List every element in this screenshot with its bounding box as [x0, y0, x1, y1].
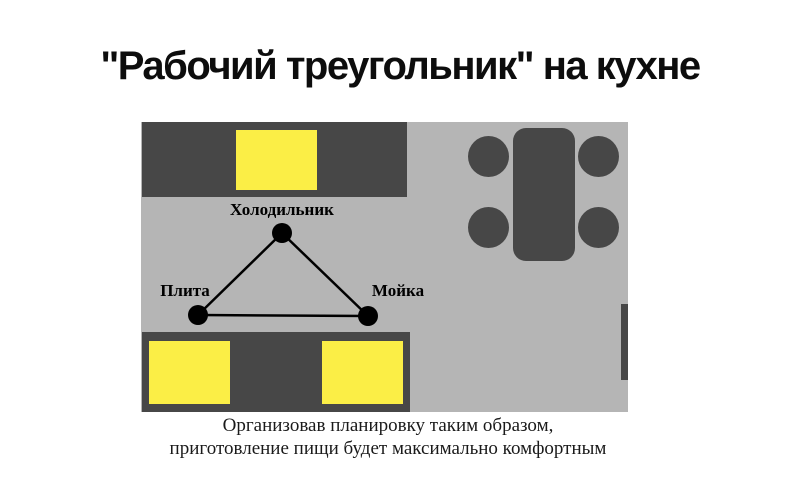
caption-line-1: Организовав планировку таким образом,: [88, 414, 688, 437]
vertex-dot-fridge: [272, 223, 292, 243]
label-fridge: Холодильник: [202, 201, 362, 219]
label-stove: Плита: [125, 282, 245, 300]
vertex-dot-sink: [358, 306, 378, 326]
triangle-edge-fridge-stove: [198, 233, 282, 315]
triangle-edge-stove-sink: [198, 315, 368, 316]
caption: Организовав планировку таким образом, пр…: [88, 414, 688, 460]
kitchen-floorplan: Холодильник Плита Мойка: [141, 122, 628, 412]
vertex-dot-stove: [188, 305, 208, 325]
infographic-canvas: "Рабочий треугольник" на кухне Холодильн…: [0, 0, 800, 492]
label-sink: Мойка: [338, 282, 458, 300]
triangle-edge-fridge-sink: [282, 233, 368, 316]
work-triangle: [141, 122, 628, 412]
page-title: "Рабочий треугольник" на кухне: [0, 44, 800, 89]
caption-line-2: приготовление пищи будет максимально ком…: [88, 437, 688, 460]
